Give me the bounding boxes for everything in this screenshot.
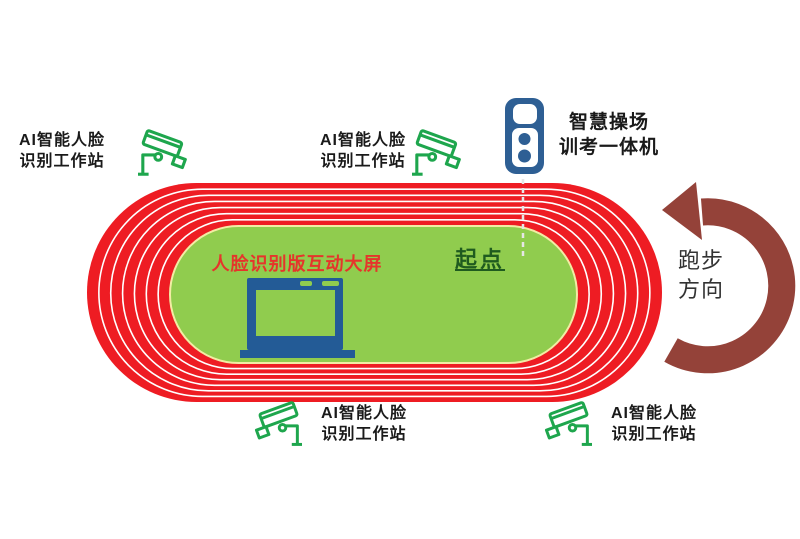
kiosk-icon [503,96,547,178]
kiosk-label-line: 智慧操场 [550,110,668,135]
run-direction-line: 方向 [668,275,734,304]
station-label-bottom-right: AI智能人脸 识别工作站 [600,403,708,445]
smart-playground-diagram: AI智能人脸 识别工作站 AI智能人脸 识别工作站 [0,0,800,539]
laptop-icon [238,272,358,358]
cctv-camera-icon-bottom-right [538,398,594,450]
station-label-bottom-middle: AI智能人脸 识别工作站 [310,403,418,445]
start-point-label: 起点 [455,242,505,274]
run-direction-label: 跑步 方向 [668,246,734,304]
station-label-line: 识别工作站 [312,151,414,172]
station-label-line: AI智能人脸 [600,403,708,424]
station-label-top-left: AI智能人脸 识别工作站 [8,130,116,172]
cctv-camera-icon-top-left [136,126,194,180]
station-label-line: 识别工作站 [310,424,418,445]
station-label-line: 识别工作站 [600,424,708,445]
station-label-line: AI智能人脸 [310,403,418,424]
station-label-top-middle: AI智能人脸 识别工作站 [312,130,414,172]
kiosk-label-line: 训考一体机 [550,135,668,160]
station-label-line: AI智能人脸 [312,130,414,151]
kiosk-label: 智慧操场 训考一体机 [550,110,668,160]
run-direction-line: 跑步 [668,246,734,275]
infield [170,226,577,363]
station-label-line: 识别工作站 [8,151,116,172]
cctv-camera-icon-top-middle [410,126,468,180]
cctv-camera-icon-bottom-middle [248,398,304,450]
station-label-line: AI智能人脸 [8,130,116,151]
